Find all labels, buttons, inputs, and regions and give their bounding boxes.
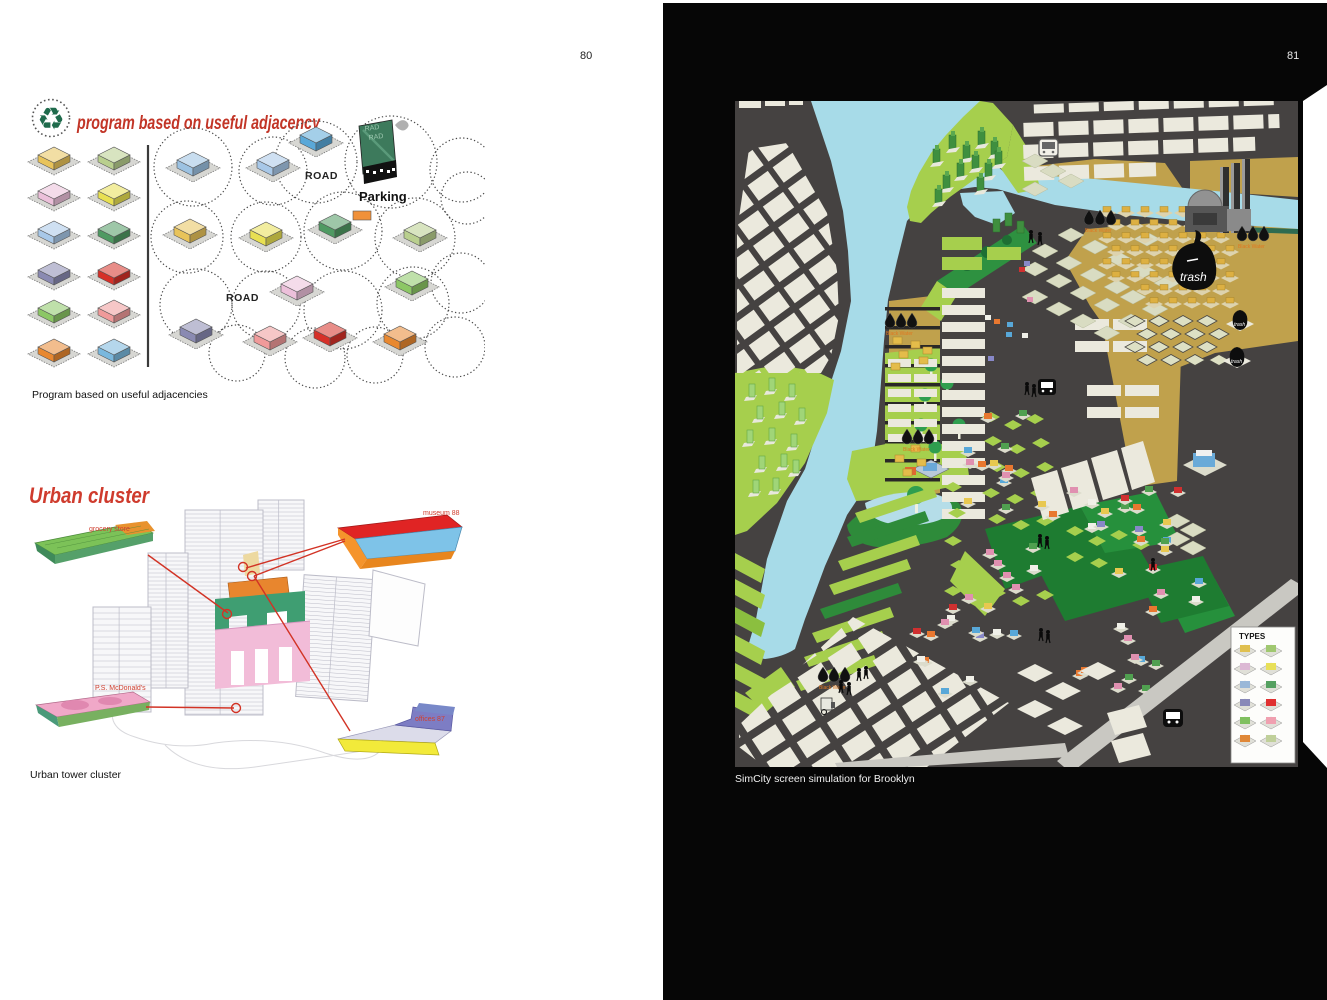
svg-text:Black Water: Black Water	[886, 331, 913, 337]
svg-text:trash: trash	[1234, 322, 1245, 328]
svg-text:Urban cluster: Urban cluster	[29, 483, 150, 508]
svg-text:Black Water: Black Water	[1238, 244, 1265, 250]
svg-text:ROAD: ROAD	[305, 170, 338, 182]
svg-text:P.S. McDonald's: P.S. McDonald's	[95, 685, 146, 692]
svg-text:Parking: Parking	[359, 189, 407, 204]
svg-text:TYPES: TYPES	[1239, 632, 1266, 641]
svg-text:Black Water: Black Water	[903, 447, 930, 453]
svg-text:trash: trash	[1231, 359, 1242, 365]
svg-text:grocery store: grocery store	[89, 526, 130, 533]
svg-text:Black Water: Black Water	[1085, 228, 1112, 234]
svg-text:♻: ♻	[37, 102, 65, 137]
svg-text:museum 88: museum 88	[423, 510, 460, 517]
svg-text:ROAD: ROAD	[226, 292, 259, 304]
svg-text:offices 87: offices 87	[415, 716, 445, 723]
svg-text:trash: trash	[1180, 270, 1207, 284]
svg-text:program based on useful adjace: program based on useful adjacency	[76, 112, 321, 134]
